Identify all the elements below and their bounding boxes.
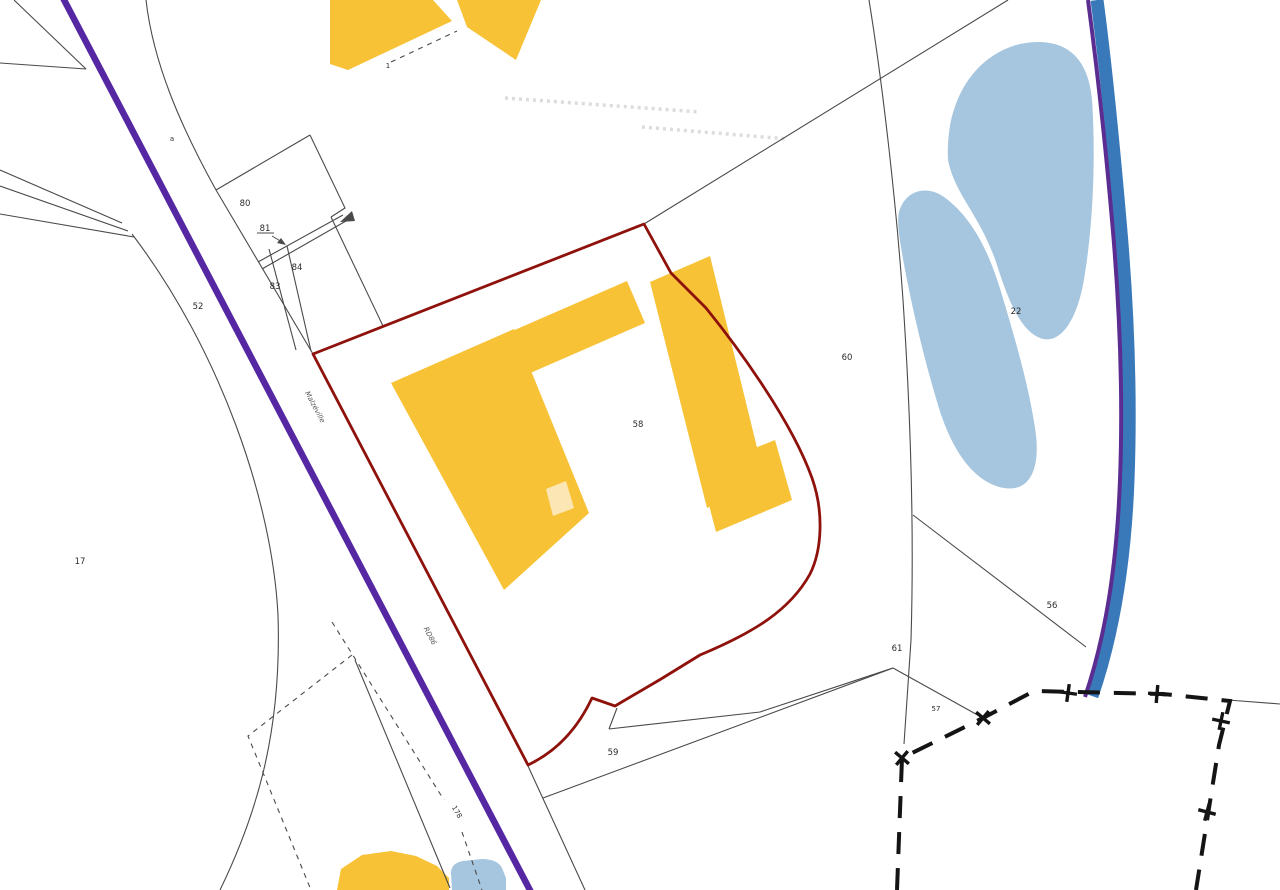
oval-track-curve: [132, 234, 278, 890]
junction-line-2: [0, 170, 122, 223]
map-canvas[interactable]: 17 22 52 56 57 58 59 60 61 80 81 83 84 1…: [0, 0, 1280, 890]
parcel-label-84: 84: [292, 263, 303, 273]
parcel-60-22-boundary: [869, 0, 912, 744]
parcel-59-61-line: [609, 668, 893, 729]
junction-line-1: [0, 63, 86, 69]
parcel-label-56: 56: [1047, 601, 1058, 611]
faded-text-remnant: [505, 98, 788, 139]
parcel-label-60: 60: [842, 353, 853, 363]
building-bottom-fragment: [337, 851, 449, 890]
boundary-cross-mark: [1147, 684, 1167, 704]
road-left-edge-top: [14, 0, 86, 69]
faded-text-line-2: [642, 127, 788, 139]
pond-bottom-fragment: [451, 859, 506, 890]
parcel-label-81: 81: [260, 224, 271, 234]
parcel-label-22: 22: [1011, 307, 1022, 317]
road-right-edge-bottom: [528, 766, 585, 890]
road-letter-label-a: a: [170, 135, 174, 143]
building-top-right: [457, 0, 541, 60]
building-sub-label-1: 1: [386, 62, 390, 70]
parcel-label-17: 17: [75, 557, 86, 567]
boundary-cross-mark: [1058, 683, 1078, 703]
parcel-84-edge: [331, 217, 383, 326]
parcel-56-top-line: [913, 515, 1086, 647]
road-right-edge-curve: [146, 0, 216, 190]
road-ref-label: RD86: [422, 626, 438, 647]
parcel-label-178: 178: [450, 804, 464, 820]
parcel-83-strip-b: [287, 246, 311, 351]
parcel-label-57: 57: [932, 705, 941, 713]
parcel-80-edge-a: [216, 135, 310, 190]
commune-boundary-line: [897, 691, 1230, 890]
commune-boundary: [889, 683, 1231, 890]
parcel-81-sliver-b: [262, 221, 346, 269]
right-edge-thin-line: [1228, 700, 1280, 704]
label-81-arrowhead: [277, 238, 286, 245]
parcel-59-notch-line: [609, 708, 617, 729]
parcel-80-edge-b: [310, 135, 345, 217]
faded-text-line-1: [505, 98, 700, 112]
parcel-label-59: 59: [608, 748, 619, 758]
parcel-label-58: 58: [633, 420, 644, 430]
parcel-label-61: 61: [892, 644, 903, 654]
parcel-label-80: 80: [240, 199, 251, 209]
building-main-left-wing: [391, 329, 589, 590]
boundary-cross-mark: [970, 705, 995, 730]
parcel-label-83: 83: [270, 282, 281, 292]
junction-line-3: [0, 186, 128, 231]
building-main: [391, 256, 792, 590]
map-viewport[interactable]: 17 22 52 56 57 58 59 60 61 80 81 83 84 1…: [0, 0, 1280, 890]
building-top-left: [330, 0, 452, 70]
sliver-arrowhead: [340, 211, 355, 222]
road-name-label: Malzéville: [303, 390, 326, 424]
parcel-label-52: 52: [193, 302, 204, 312]
buildings: [330, 0, 792, 890]
parcel-59-south-line: [543, 668, 893, 798]
building-main-top-arm: [510, 281, 645, 374]
